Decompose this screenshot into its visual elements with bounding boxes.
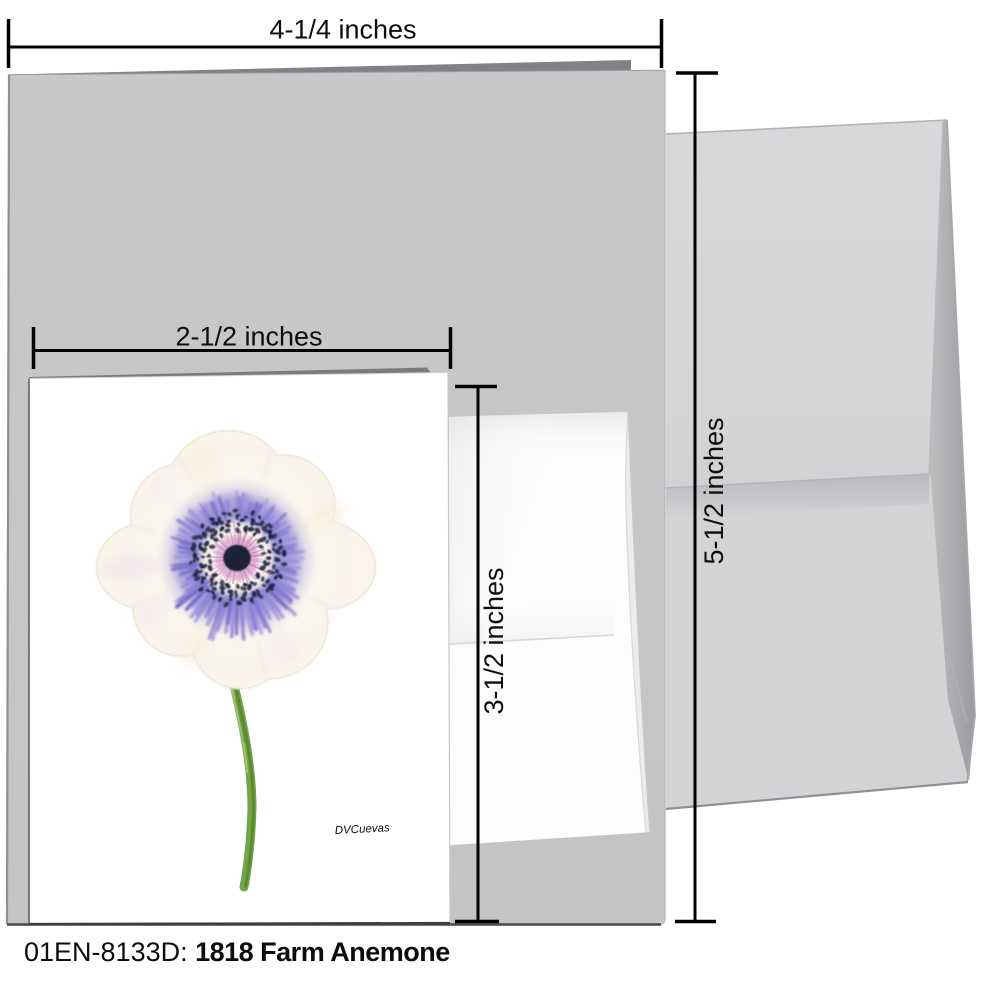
svg-text:4-1/4 inches: 4-1/4 inches [269,15,416,45]
svg-text:5-1/2 inches: 5-1/2 inches [699,417,729,564]
svg-text:2-1/2 inches: 2-1/2 inches [175,322,322,352]
svg-text:3-1/2 inches: 3-1/2 inches [479,567,509,714]
svg-text:01EN-8133D: 1818 Farm Anemone: 01EN-8133D: 1818 Farm Anemone [24,937,450,967]
